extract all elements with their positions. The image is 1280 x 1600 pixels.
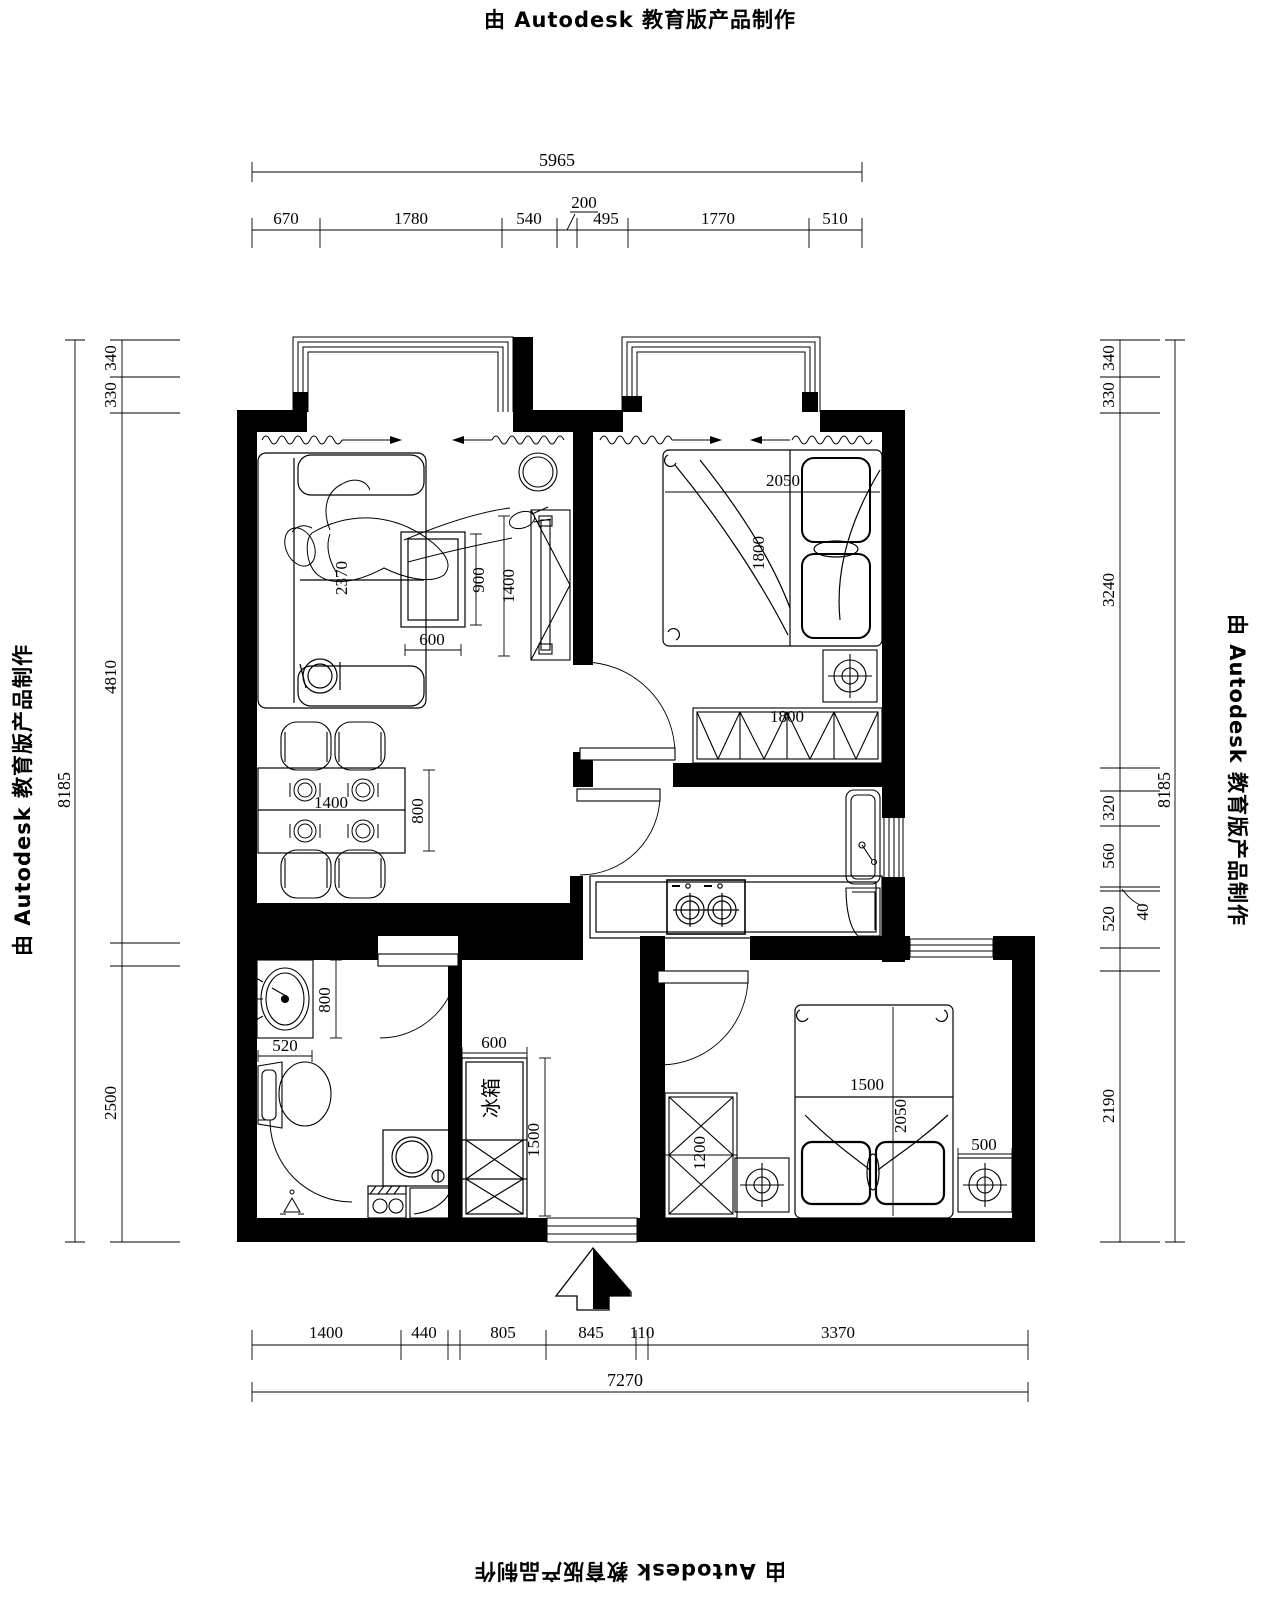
bedroom2-nightstand-right: [958, 1158, 1012, 1212]
dim-left-4810: 4810: [101, 660, 120, 694]
dim-top-overall: 5965: [539, 150, 575, 170]
bath-cabinet: [368, 1186, 454, 1218]
dim-bottom-440: 440: [411, 1323, 437, 1342]
dim-right-560: 560: [1099, 843, 1118, 869]
dim-dining-1400: 1400: [314, 793, 348, 812]
floor-drain-icon: [280, 1190, 304, 1214]
dim-top-670: 670: [273, 209, 299, 228]
dim-bed2-2050: 2050: [891, 1099, 910, 1133]
master-nightstand: [823, 650, 877, 702]
watermark-bottom: 由 Autodesk 教育版产品制作: [474, 1557, 786, 1587]
dim-right-3240: 3240: [1099, 573, 1118, 607]
dim-wardrobe2-1200: 1200: [690, 1136, 709, 1170]
entry-threshold: [547, 1218, 637, 1242]
stove: [667, 880, 745, 934]
washing-machine: [383, 1130, 449, 1186]
dim-right-overall: 8185: [1154, 772, 1174, 808]
bedroom2-door: [658, 971, 748, 1065]
dim-top-1770: 1770: [701, 209, 735, 228]
bedroom2-nightstand-left: [735, 1158, 789, 1212]
dim-bottom-3370: 3370: [821, 1323, 855, 1342]
dim-tv-1400: 1400: [499, 569, 518, 603]
kitchen-drain-tray: [846, 888, 880, 936]
watermark-top: 由 Autodesk 教育版产品制作: [0, 4, 1280, 34]
dim-right-330: 330: [1099, 382, 1118, 408]
tv-cabinet: [531, 510, 570, 660]
dim-right-320: 320: [1099, 795, 1118, 821]
dim-right-340: 340: [1099, 345, 1118, 371]
dim-left-overall: 8185: [54, 772, 74, 808]
kitchen-door: [577, 789, 660, 875]
dim-wardrobe-1800: 1800: [770, 707, 804, 726]
dim-left-2500: 2500: [101, 1086, 120, 1120]
dim-top-510: 510: [822, 209, 848, 228]
dim-fridge-600: 600: [481, 1033, 507, 1052]
dim-sofa-2370: 2370: [332, 561, 351, 595]
bathroom-vanity: [255, 960, 313, 1038]
dim-left-340: 340: [101, 345, 120, 371]
ceiling-fan-icon: [519, 453, 557, 491]
dim-bottom-845: 845: [578, 1323, 604, 1342]
bedroom2-window: [910, 936, 993, 960]
dim-right-520: 520: [1099, 906, 1118, 932]
dim-coffee-900: 900: [469, 567, 488, 593]
kitchen-window: [882, 818, 905, 877]
dim-fridge-1500: 1500: [524, 1123, 543, 1157]
dim-coffee-600: 600: [419, 630, 445, 649]
bay-window-master: [622, 337, 820, 412]
curtain-lines: [262, 436, 872, 444]
dim-bottom-overall: 7270: [607, 1370, 643, 1390]
bathroom-door: [378, 954, 458, 1038]
dim-dining-800: 800: [408, 798, 427, 824]
dim-left-330: 330: [101, 382, 120, 408]
dim-bottom-805: 805: [490, 1323, 516, 1342]
shower-arc: [258, 1120, 352, 1202]
dim-vanity-800: 800: [315, 987, 334, 1013]
dim-bottom-110: 110: [630, 1323, 655, 1342]
bedroom2-bed: [795, 1005, 953, 1218]
dim-labels: 5965 670 1780 540 200 495 1770 510 8185 …: [54, 150, 1174, 1390]
dim-top-495: 495: [593, 209, 619, 228]
dim-nightstand-500: 500: [971, 1135, 997, 1154]
kitchen-sink: [846, 790, 880, 884]
floor-plan-drawing: 5965 670 1780 540 200 495 1770 510 8185 …: [0, 0, 1280, 1600]
watermark-left: 由 Autodesk 教育版产品制作: [7, 644, 37, 956]
entry-arrow-icon: [556, 1248, 631, 1310]
watermark-right: 由 Autodesk 教育版产品制作: [1223, 614, 1253, 926]
dim-right-40: 40: [1133, 904, 1152, 921]
floor-plan-canvas: 5965 670 1780 540 200 495 1770 510 8185 …: [0, 0, 1280, 1600]
fridge-label: 冰箱: [480, 1078, 503, 1118]
dim-top-540: 540: [516, 209, 542, 228]
dim-right-2190: 2190: [1099, 1089, 1118, 1123]
master-bedroom-door: [580, 662, 675, 760]
dim-bed2-1500: 1500: [850, 1075, 884, 1094]
dim-top-1780: 1780: [394, 209, 428, 228]
dim-bed-1800: 1800: [749, 536, 768, 570]
dim-vanity-520: 520: [272, 1036, 298, 1055]
dim-bottom-1400: 1400: [309, 1323, 343, 1342]
bay-window-living: [293, 337, 513, 412]
toilet: [258, 1062, 331, 1128]
dim-bed-2050: 2050: [766, 471, 800, 490]
